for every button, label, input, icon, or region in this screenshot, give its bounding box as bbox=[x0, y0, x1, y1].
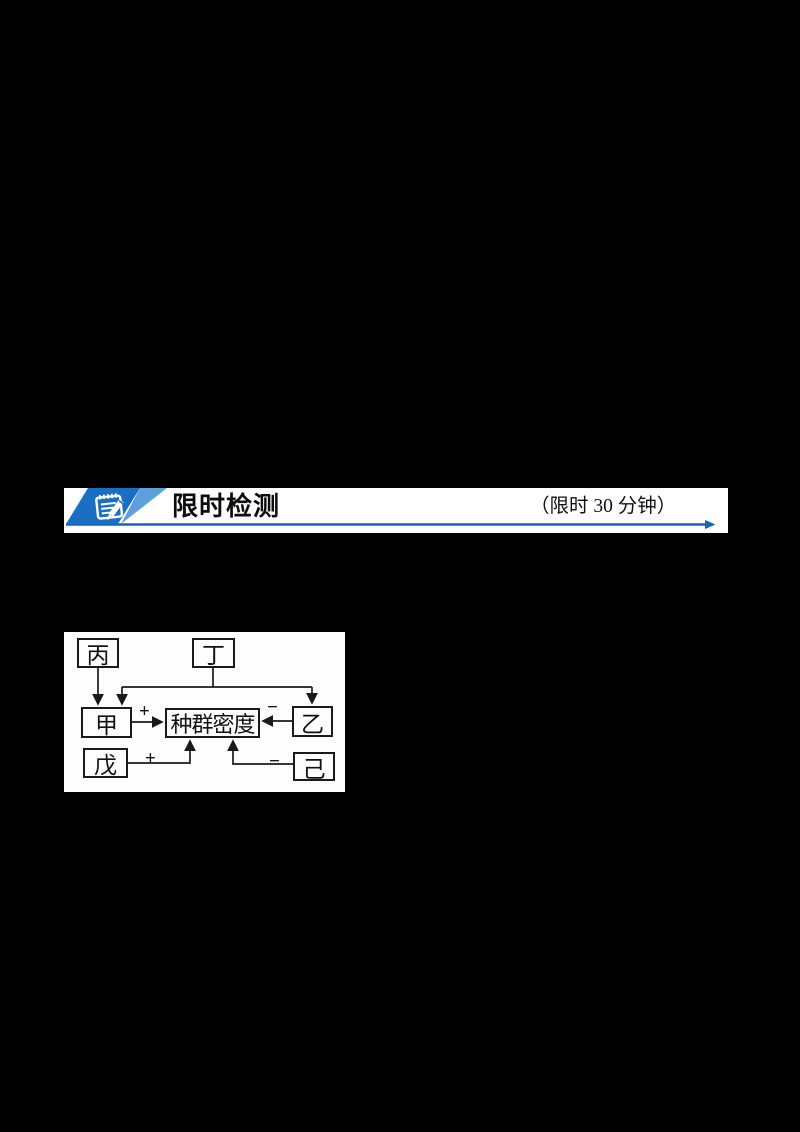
node-yi: 乙 bbox=[292, 706, 333, 737]
population-density-diagram: 丙 丁 甲 种群密度 乙 戊 己 + − + − bbox=[64, 632, 345, 792]
section-header-banner: 限时检测 （限时 30 分钟） bbox=[64, 488, 728, 533]
node-ji: 己 bbox=[293, 752, 335, 781]
node-population-density: 种群密度 bbox=[165, 708, 260, 738]
node-wu: 戊 bbox=[83, 748, 128, 778]
edge-ji-to-center bbox=[233, 741, 293, 764]
node-ding: 丁 bbox=[192, 638, 235, 668]
node-jia: 甲 bbox=[81, 707, 132, 738]
node-bing: 丙 bbox=[77, 638, 119, 668]
page: { "page": { "background": "#000000", "ki… bbox=[0, 0, 800, 1132]
underline-arrow-icon bbox=[705, 520, 716, 529]
edge-wu-to-center bbox=[128, 741, 190, 763]
banner-badge bbox=[66, 488, 167, 524]
sign-minus-ji: − bbox=[269, 752, 280, 771]
banner-time-limit: （限时 30 分钟） bbox=[530, 488, 676, 524]
sign-minus-yi: − bbox=[267, 698, 278, 717]
banner-title: 限时检测 bbox=[172, 488, 280, 524]
sign-plus-jia: + bbox=[139, 702, 150, 721]
sign-plus-wu: + bbox=[145, 749, 156, 768]
